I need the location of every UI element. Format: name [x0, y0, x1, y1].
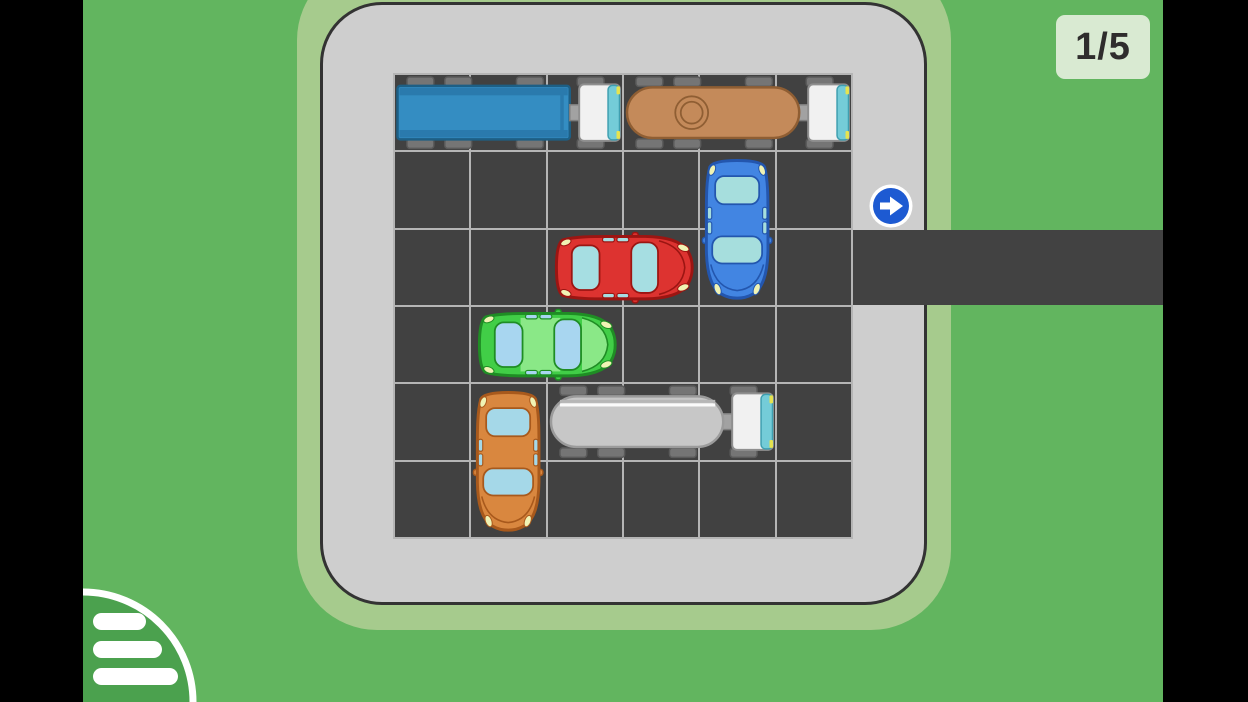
board-cell — [700, 307, 774, 382]
board-cell — [395, 462, 469, 537]
board-cell — [471, 152, 545, 227]
vehicle-blue-car[interactable] — [700, 152, 774, 305]
exit-road — [853, 230, 1163, 305]
board-cell — [624, 152, 698, 227]
vehicle-blue-box-truck[interactable] — [395, 75, 622, 150]
board-cell — [548, 462, 622, 537]
letterbox-left — [0, 0, 83, 702]
letterbox-right — [1163, 0, 1248, 702]
game-screen: 1/5 — [0, 0, 1248, 702]
board-cell — [777, 462, 851, 537]
menu-button[interactable] — [83, 588, 197, 702]
arrow-right-icon — [868, 183, 914, 229]
board-cell — [777, 152, 851, 227]
board-cell — [395, 230, 469, 305]
hamburger-menu-icon — [83, 588, 197, 702]
board-cell — [624, 307, 698, 382]
board-cell — [777, 384, 851, 459]
level-indicator: 1/5 — [1056, 15, 1150, 79]
vehicle-white-tanker-truck[interactable] — [548, 384, 775, 459]
board-cell — [700, 462, 774, 537]
vehicle-green-car[interactable] — [471, 307, 622, 382]
vehicle-orange-car[interactable] — [471, 384, 545, 537]
exit-arrow-sign — [868, 183, 914, 229]
board-cell — [395, 307, 469, 382]
board-cell — [548, 152, 622, 227]
vehicle-brown-tanker-truck[interactable] — [624, 75, 851, 150]
board-cell — [624, 462, 698, 537]
board-cell — [777, 230, 851, 305]
board-cell — [777, 307, 851, 382]
vehicle-red-car[interactable] — [548, 230, 699, 305]
board-cell — [395, 152, 469, 227]
board-cell — [395, 384, 469, 459]
board-cell — [471, 230, 545, 305]
